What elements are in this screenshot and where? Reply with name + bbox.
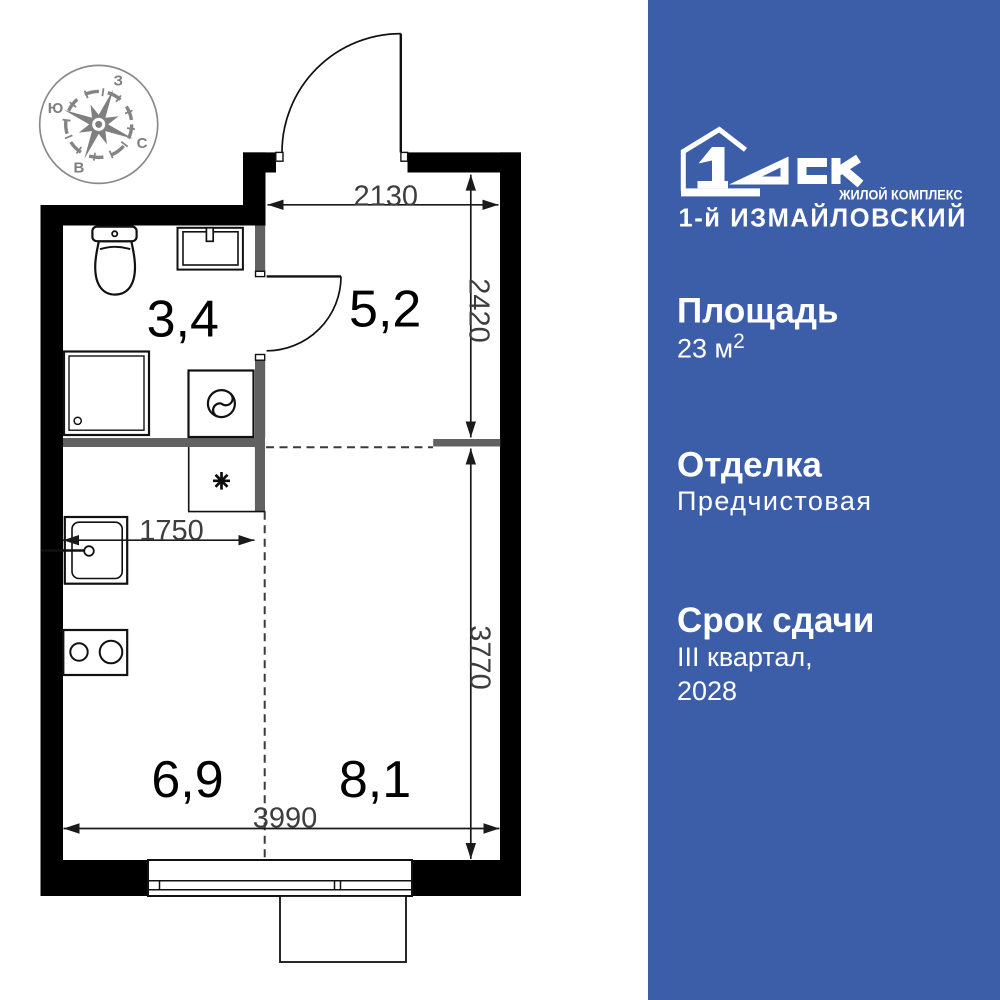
svg-text:З: З (113, 73, 122, 90)
svg-text:Предчистовая: Предчистовая (677, 486, 871, 516)
svg-text:2130: 2130 (354, 181, 419, 213)
svg-text:ЖИЛОЙ КОМПЛЕКС: ЖИЛОЙ КОМПЛЕКС (838, 188, 963, 203)
svg-text:С: С (137, 135, 148, 152)
svg-text:Отделка: Отделка (677, 446, 822, 485)
svg-text:5,2: 5,2 (349, 281, 421, 339)
svg-text:1750: 1750 (139, 515, 204, 547)
svg-text:Площадь: Площадь (677, 292, 838, 331)
svg-text:8,1: 8,1 (339, 751, 411, 809)
svg-text:2028: 2028 (677, 676, 737, 706)
svg-text:III квартал,: III квартал, (677, 642, 813, 672)
svg-text:Срок сдачи: Срок сдачи (677, 601, 874, 640)
svg-text:6,9: 6,9 (151, 751, 223, 809)
svg-text:Ю: Ю (48, 100, 63, 117)
svg-text:3770: 3770 (464, 625, 496, 690)
svg-text:В: В (73, 160, 84, 177)
svg-text:3,4: 3,4 (147, 291, 219, 349)
svg-text:3990: 3990 (253, 803, 318, 835)
svg-text:2420: 2420 (463, 278, 495, 343)
svg-text:1-й ИЗМАЙЛОВСКИЙ: 1-й ИЗМАЙЛОВСКИЙ (679, 203, 966, 233)
